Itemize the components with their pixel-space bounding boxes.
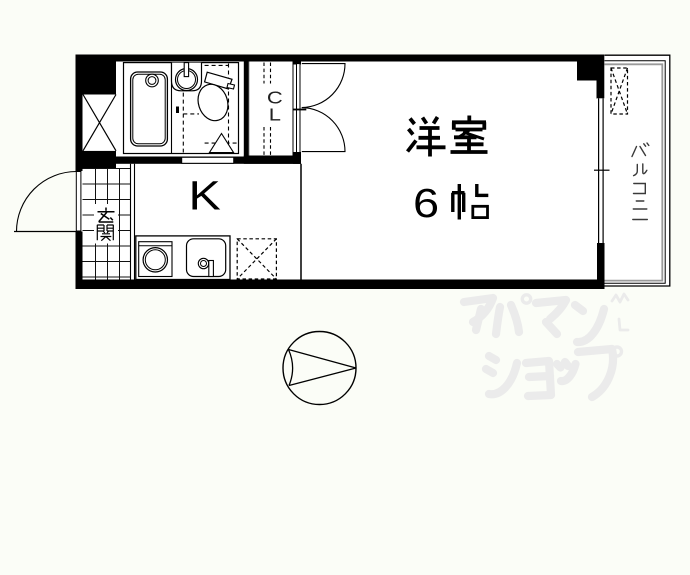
svg-text:L: L xyxy=(269,105,281,125)
svg-text:K: K xyxy=(188,172,220,219)
svg-text:6: 6 xyxy=(413,181,439,226)
